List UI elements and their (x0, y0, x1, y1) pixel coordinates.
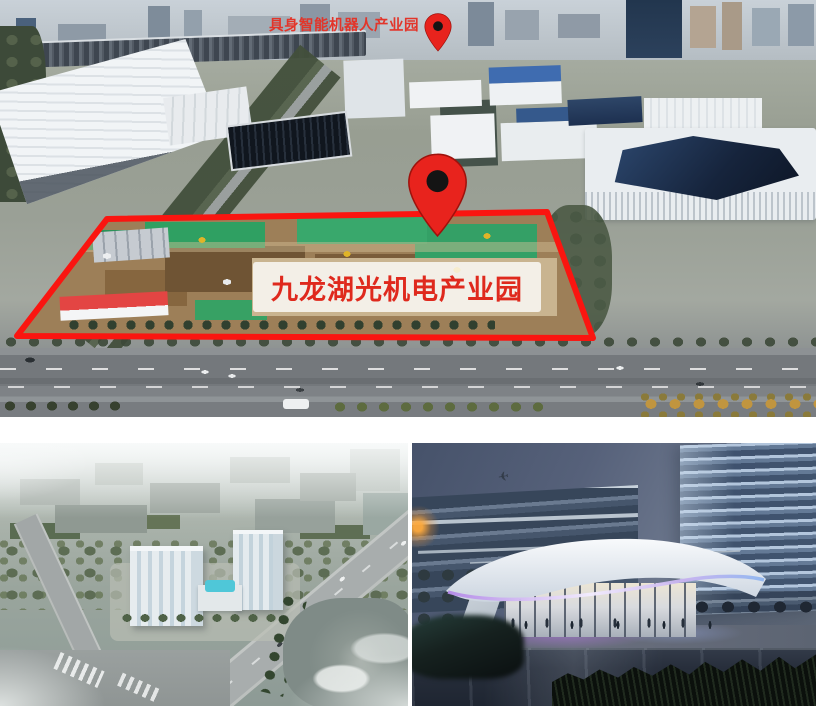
airplane-icon: ✈ (497, 468, 511, 486)
bottom-intersection (0, 650, 230, 706)
map-pin-icon-large (407, 142, 468, 249)
lake-with-cloud-reflections (283, 598, 408, 706)
street-lamp-glow (412, 505, 440, 549)
background-city-blocks (0, 443, 408, 543)
campus-aerial-rendering (0, 443, 408, 706)
reflecting-pool (205, 580, 235, 592)
aerial-construction-photo: 具身智能机器人产业园 九龙湖光机电产业园 (0, 0, 816, 417)
secondary-park-label: 具身智能机器人产业园 (269, 14, 419, 35)
map-pin-icon-small (424, 12, 452, 53)
entrance-night-rendering: ✈ (412, 443, 816, 706)
primary-park-label: 九龙湖光机电产业园 (271, 268, 523, 307)
page: 具身智能机器人产业园 九龙湖光机电产业园 ✈ (0, 0, 816, 714)
primary-park-label-box: 九龙湖光机电产业园 (253, 262, 541, 312)
people-silhouettes (504, 609, 714, 639)
moving-car-blur (412, 615, 524, 679)
campus-trees (118, 609, 278, 627)
entrance-canopy (440, 521, 774, 623)
